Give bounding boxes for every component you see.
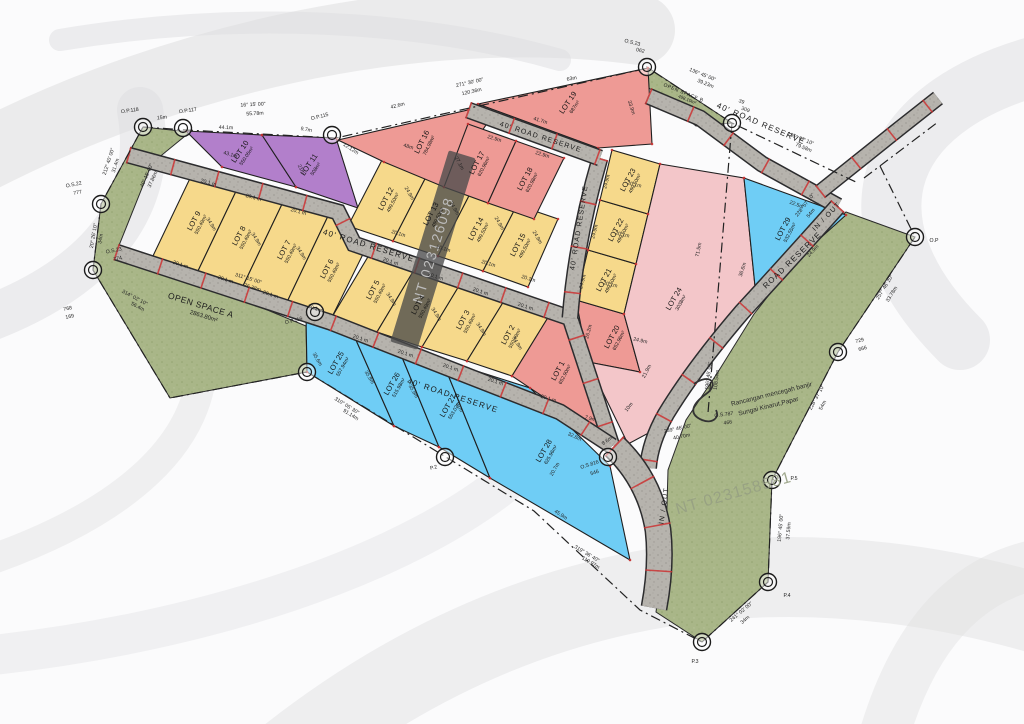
lot-corner-tick: [515, 140, 518, 143]
survey-point-outer-ring: [93, 196, 110, 213]
lot-corner-tick: [563, 157, 566, 160]
measurement-label: 54m: [818, 400, 828, 412]
measurement-label: 120.36m: [461, 87, 482, 97]
survey-point-outer-ring: [324, 127, 341, 144]
measurement-label: 729: [855, 337, 865, 345]
lot-corner-tick: [295, 186, 298, 189]
survey-point-outer-ring: [85, 262, 102, 279]
measurement-label: P.2: [430, 464, 439, 472]
lot-corner-tick: [487, 202, 490, 205]
lot-corner-tick: [393, 425, 396, 428]
lot-corner-tick: [527, 286, 530, 289]
survey-point-outer-ring: [639, 59, 656, 76]
lot-corner-tick: [635, 263, 638, 266]
lot-corner-tick: [647, 213, 650, 216]
lot-corner-tick: [659, 163, 662, 166]
measurement-label: 16° 15' 00": [240, 101, 266, 108]
lot-corner-tick: [629, 559, 632, 562]
measurement-label: O.P.117: [179, 107, 198, 115]
survey-point-outer-ring: [694, 634, 711, 651]
survey-plan-page: NT 023126098NT 023158581OPEN SPACE A2863…: [0, 0, 1024, 724]
background-swirl: [891, 60, 1024, 340]
measurement-label: 666: [858, 345, 868, 353]
lot-corner-tick: [533, 218, 536, 221]
lot-corner-tick: [421, 346, 424, 349]
subdivision-survey-plan: NT 023126098NT 023158581OPEN SPACE A2863…: [0, 0, 1024, 724]
measurement-label: 777: [73, 189, 83, 197]
lot-corner-tick: [511, 375, 514, 378]
measurement-label: O.S.22: [65, 180, 82, 189]
lot-corner-tick: [467, 123, 470, 126]
measurement-label: O.P: [930, 238, 939, 244]
measurement-label: O.P.115: [310, 112, 329, 122]
survey-point-outer-ring: [760, 574, 777, 591]
lot-corner-tick: [466, 360, 469, 363]
lot-corner-tick: [651, 143, 654, 146]
lot-corner-tick: [529, 387, 532, 390]
lot-corner-tick: [623, 313, 626, 316]
lot-corner-tick: [639, 371, 642, 374]
measurement-label: 42.6m: [390, 101, 405, 110]
measurement-label: 63m: [566, 75, 577, 83]
measurement-label: 55.78m: [246, 111, 264, 118]
survey-point-outer-ring: [830, 344, 847, 361]
lot-corner-tick: [392, 240, 395, 243]
measurement-label: 39: [738, 98, 746, 106]
lot-corner-tick: [438, 446, 441, 449]
lot-corner-tick: [482, 270, 485, 273]
measurement-label: P.4: [783, 593, 790, 599]
measurement-label: P.5: [790, 476, 797, 482]
measurement-label: 9.7m: [300, 126, 312, 134]
lot-corner-tick: [743, 177, 746, 180]
lot-corner-tick: [221, 166, 224, 169]
measurement-label: 44.1m: [219, 125, 234, 131]
survey-point-outer-ring: [175, 120, 192, 137]
survey-point-outer-ring: [437, 449, 454, 466]
lot-corner-tick: [489, 477, 492, 480]
lot-corner-tick: [845, 214, 848, 217]
measurement-label: 768: [63, 305, 73, 313]
measurement-label: P.3: [691, 659, 698, 665]
measurement-label: 15m: [157, 115, 168, 122]
lot-corner-tick: [599, 199, 602, 202]
survey-point-outer-ring: [135, 119, 152, 136]
lot-corner-tick: [611, 149, 614, 152]
survey-point-outer-ring: [299, 364, 316, 381]
lot-corner-tick: [383, 161, 386, 164]
lot-corner-tick: [557, 218, 560, 221]
survey-point-outer-ring: [907, 229, 924, 246]
survey-point-outer-ring: [600, 449, 617, 466]
measurement-label: 466: [723, 419, 733, 426]
measurement-label: 169: [65, 313, 75, 321]
